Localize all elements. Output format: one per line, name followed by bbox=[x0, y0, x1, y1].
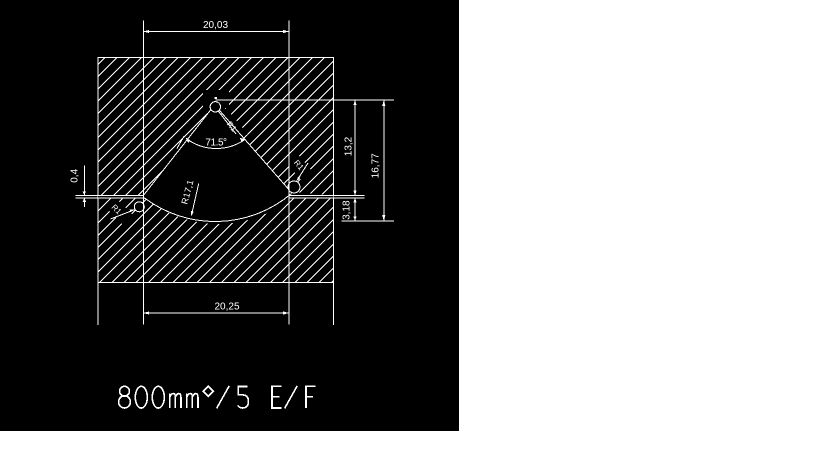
svg-text:16,77: 16,77 bbox=[371, 153, 382, 178]
svg-text:20,03: 20,03 bbox=[203, 20, 228, 31]
svg-text:3,18: 3,18 bbox=[342, 200, 353, 220]
svg-text:20,25: 20,25 bbox=[214, 302, 239, 313]
svg-text:0,4: 0,4 bbox=[70, 168, 81, 182]
svg-text:13,2: 13,2 bbox=[344, 136, 355, 156]
svg-text:71.5°: 71.5° bbox=[205, 138, 227, 149]
